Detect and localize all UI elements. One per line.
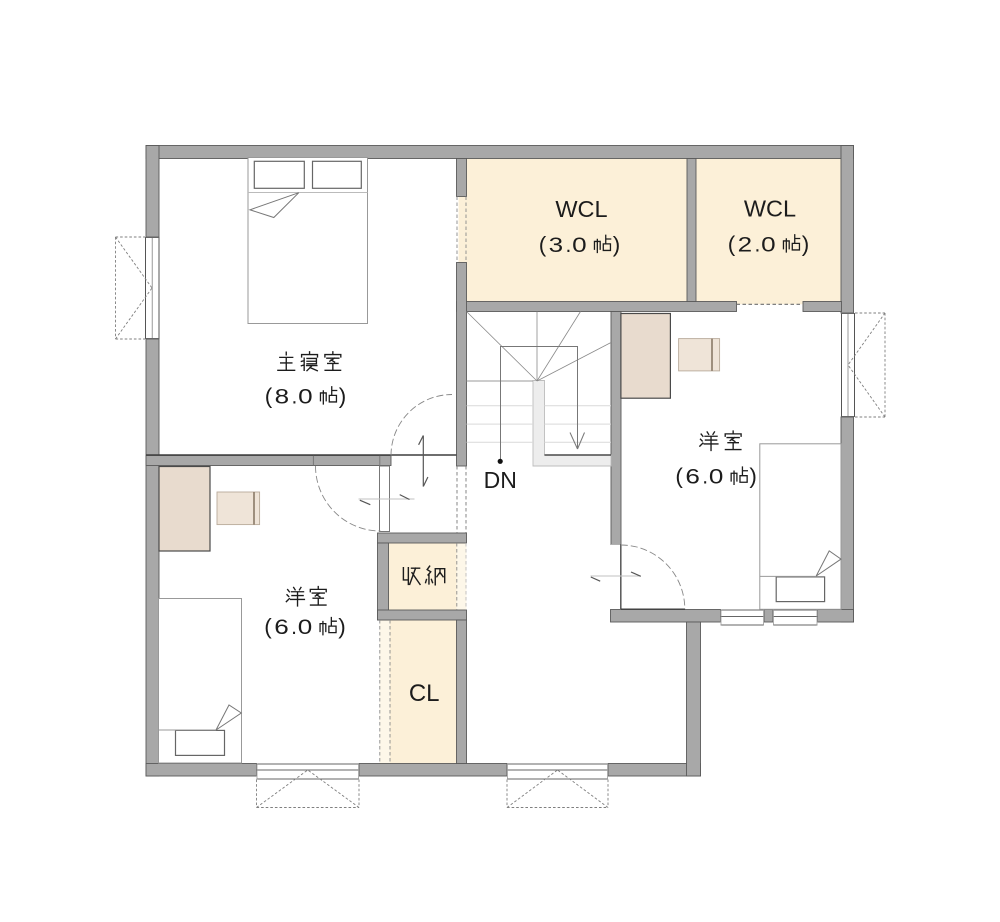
svg-text:(: ( xyxy=(264,614,272,639)
svg-text:(: ( xyxy=(265,383,273,408)
svg-text:WCL: WCL xyxy=(744,196,796,222)
svg-text:WCL: WCL xyxy=(555,196,607,222)
svg-text:): ) xyxy=(613,232,621,257)
svg-text:): ) xyxy=(338,614,346,639)
svg-text:(: ( xyxy=(539,232,547,257)
svg-text:.: . xyxy=(702,466,708,489)
svg-text:2: 2 xyxy=(738,233,753,256)
svg-text:8: 8 xyxy=(275,385,290,408)
svg-text:0: 0 xyxy=(709,466,724,489)
svg-text:0: 0 xyxy=(761,233,776,256)
svg-text:CL: CL xyxy=(409,680,440,707)
svg-text:.: . xyxy=(291,616,297,639)
svg-text:.: . xyxy=(292,385,298,408)
svg-text:.: . xyxy=(755,233,761,256)
svg-text:6: 6 xyxy=(685,466,700,489)
svg-text:(: ( xyxy=(728,231,736,256)
svg-text:0: 0 xyxy=(298,616,313,639)
svg-text:0: 0 xyxy=(572,234,587,257)
svg-text:3: 3 xyxy=(549,234,564,257)
svg-text:): ) xyxy=(749,464,757,489)
svg-text:): ) xyxy=(339,383,347,408)
svg-text:(: ( xyxy=(675,464,683,489)
svg-text:0: 0 xyxy=(298,385,313,408)
svg-text:): ) xyxy=(802,231,810,256)
svg-text:6: 6 xyxy=(274,616,289,639)
svg-text:.: . xyxy=(566,234,572,257)
svg-text:DN: DN xyxy=(484,467,517,493)
